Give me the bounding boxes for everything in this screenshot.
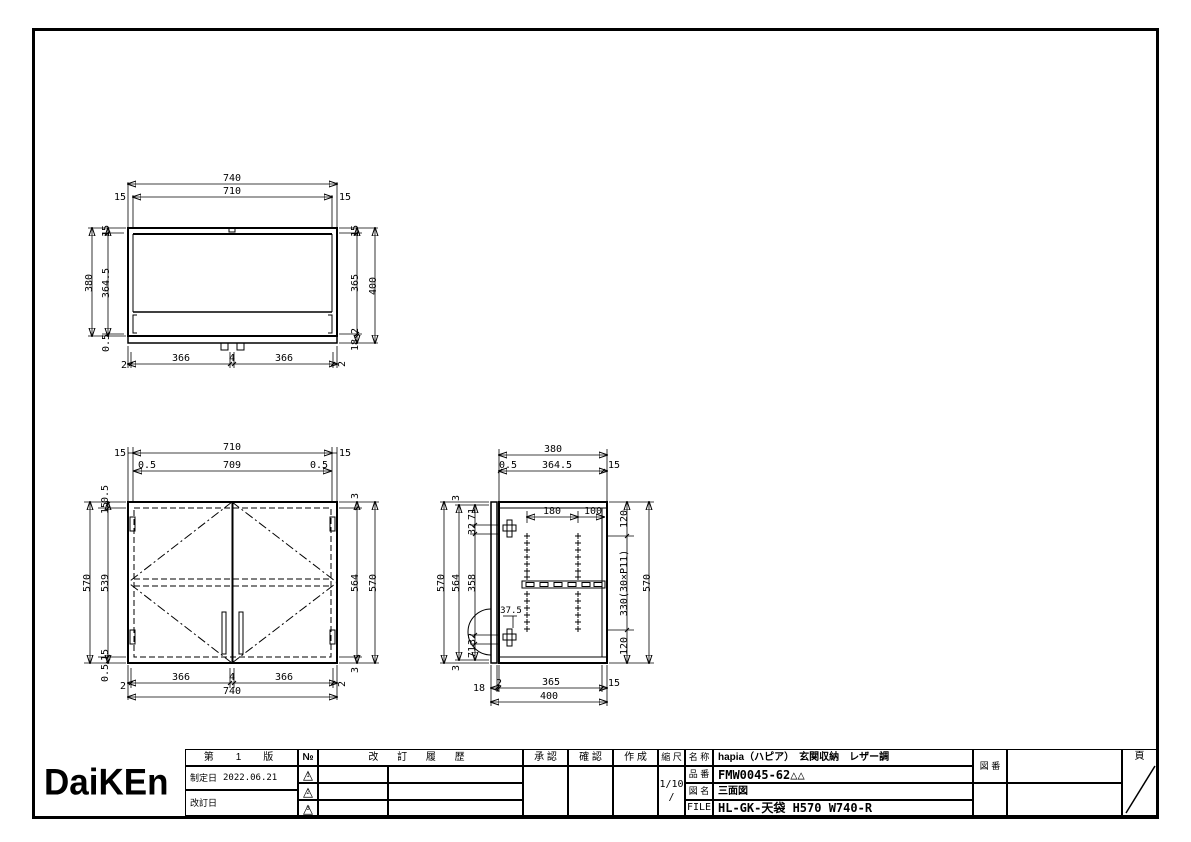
author-header: 作 成 — [613, 749, 658, 766]
revision-mark-1: △1 — [298, 766, 318, 783]
approval-cell — [523, 766, 568, 816]
dim-label: 380 — [84, 274, 95, 292]
dim-label: 366 — [275, 353, 293, 364]
dim-label: 358 — [467, 574, 478, 592]
dim-label: 120 — [619, 637, 630, 655]
fig-no-value — [1007, 749, 1122, 783]
dim-label: 2 — [121, 360, 127, 371]
bracket-right — [328, 315, 332, 333]
dim-label: 4 — [229, 672, 235, 683]
dim-label: 3 — [451, 665, 462, 671]
page-cell: 頁 — [1122, 749, 1157, 816]
revised-date-cell: 改訂日 — [185, 790, 298, 816]
dim-label: 400 — [540, 691, 558, 702]
approval-header: 承 認 — [523, 749, 568, 766]
dim-label: 0.5 — [100, 664, 111, 682]
drawing-sheet: 740 710 15 15 380 15 364.5 0.5 15 365 2 … — [0, 0, 1191, 842]
no-header-cell: № — [298, 749, 318, 766]
check-cell — [568, 766, 613, 816]
front-view: 15 710 15 0.5 709 0.5 570 0.5 15 539 15 … — [82, 442, 379, 700]
revision-mark-3: △3 — [298, 800, 318, 816]
door-handle-left — [222, 612, 226, 654]
scale-cell: 1/10 / — [658, 766, 685, 816]
history-cell — [388, 800, 523, 816]
dim-label: 4 — [229, 353, 235, 364]
established-date: 2022.06.21 — [223, 774, 277, 783]
dim-label: 2 — [120, 681, 126, 692]
fig-no-lower-value — [1007, 783, 1122, 816]
dim-label: 740 — [223, 686, 241, 697]
revision-history-header: 改 訂 履 歴 — [318, 749, 523, 766]
scale-value: 1/10 — [659, 780, 683, 790]
file-value: HL-GK-天袋 H570 W740-R — [713, 800, 973, 816]
edition-cell: 第 1 版 — [185, 749, 298, 766]
drawing-name-value: 三面図 — [713, 783, 973, 800]
dim-label: 364.5 — [542, 460, 572, 471]
dim-label: 364.5 — [101, 268, 112, 298]
name-value: hapia（ハピア） 玄関収納 レザー調 — [713, 749, 973, 766]
dim-label: 0.5 — [310, 460, 328, 471]
page-diagonal-line — [1123, 750, 1158, 817]
established-date-cell: 制定日 2022.06.21 — [185, 766, 298, 790]
daiken-logo: DaiKEn — [44, 762, 168, 804]
dim-label: 3 — [350, 667, 361, 673]
dim-label: 366 — [172, 353, 190, 364]
fig-no-lower-cell — [973, 783, 1007, 816]
hinge-symbol-bottom — [503, 629, 516, 646]
dim-label: 570 — [82, 574, 93, 592]
dim-label: 15 — [100, 649, 111, 661]
dim-label: 15 — [100, 502, 111, 514]
dim-label: 570 — [642, 574, 653, 592]
dim-label: 564 — [350, 574, 361, 592]
dim-label: 71 — [467, 646, 478, 658]
dim-label: 2 — [337, 361, 348, 367]
dim-label: 32 — [467, 523, 478, 535]
dim-label: 0.5 — [138, 460, 156, 471]
scale-header: 縮 尺 — [658, 749, 685, 766]
revision-number: 3 — [306, 806, 309, 812]
history-cell — [318, 783, 388, 800]
revised-label: 改訂日 — [190, 799, 217, 808]
revision-number: 1 — [306, 773, 309, 779]
dim-label: 2 — [496, 678, 502, 689]
dim-label: 365 — [542, 677, 560, 688]
check-header: 確 認 — [568, 749, 613, 766]
dim-label: 366 — [275, 672, 293, 683]
dim-label: 15 — [608, 460, 620, 471]
dim-label: 18 — [473, 683, 485, 694]
dim-label: 0.5 — [101, 334, 112, 352]
door-handle-right — [239, 612, 243, 654]
history-cell — [388, 766, 523, 783]
established-label: 制定日 — [190, 774, 217, 783]
scale-value-2: / — [668, 793, 674, 803]
hinge-symbol-top — [503, 520, 516, 537]
dim-label: 740 — [223, 173, 241, 184]
history-cell — [318, 766, 388, 783]
dim-label: 0.5 — [499, 460, 517, 471]
hinge-tab-right — [237, 343, 244, 350]
dim-label: 15 — [350, 225, 361, 237]
side-view: 380 0.5 364.5 15 570 3 564 3 71 32 358 3… — [436, 444, 654, 706]
dim-label: 570 — [436, 574, 447, 592]
three-view-drawing: 740 710 15 15 380 15 364.5 0.5 15 365 2 … — [0, 0, 1191, 842]
dim-label: 120 — [619, 510, 630, 528]
history-cell — [318, 800, 388, 816]
dim-label: 3 — [451, 495, 462, 501]
dim-label: 400 — [368, 277, 379, 295]
fig-no-label: 図 番 — [973, 749, 1007, 783]
part-no-label: 品 番 — [685, 766, 713, 783]
dim-label: 15 — [339, 192, 351, 203]
dim-label: 15 — [114, 192, 126, 203]
shelf — [522, 581, 605, 588]
dim-label: 710 — [223, 186, 241, 197]
dim-label: 710 — [223, 442, 241, 453]
hinge-tab-left — [221, 343, 228, 350]
dim-label: 100 — [584, 506, 602, 517]
top-view: 740 710 15 15 380 15 364.5 0.5 15 365 2 … — [84, 173, 379, 371]
dim-label: 18 — [350, 339, 361, 351]
author-cell — [613, 766, 658, 816]
revision-number: 2 — [306, 790, 309, 796]
dim-label: 539 — [100, 574, 111, 592]
door-leaf — [491, 502, 497, 663]
dim-label: 2 — [350, 328, 361, 334]
part-no-value: FMW0045-62△△ — [713, 766, 973, 783]
top-view-dim-lines — [88, 182, 378, 368]
dim-label: 37.5 — [500, 606, 522, 616]
name-label: 名 称 — [685, 749, 713, 766]
dim-label: 380 — [544, 444, 562, 455]
revision-mark-2: △2 — [298, 783, 318, 800]
dim-label: 0.5 — [100, 485, 111, 503]
dim-label: 71 — [467, 508, 478, 520]
dim-label: 365 — [350, 274, 361, 292]
dim-label: 366 — [172, 672, 190, 683]
dim-label: 15 — [608, 678, 620, 689]
dim-label: 570 — [368, 574, 379, 592]
dim-label: 15 — [114, 448, 126, 459]
dim-label: 180 — [543, 506, 561, 517]
dim-label: 564 — [451, 574, 462, 592]
dim-label: 709 — [223, 460, 241, 471]
bracket-left — [133, 315, 137, 333]
history-cell — [388, 783, 523, 800]
drawing-name-label: 図 名 — [685, 783, 713, 800]
dim-label: 3 — [350, 493, 361, 499]
dim-label: 15 — [339, 448, 351, 459]
dim-label: 330(30×P11) — [619, 550, 630, 616]
file-label: FILE — [685, 800, 713, 816]
dim-label: 2 — [337, 681, 348, 687]
dim-label: 15 — [101, 225, 112, 237]
dim-label: 32 — [467, 633, 478, 645]
